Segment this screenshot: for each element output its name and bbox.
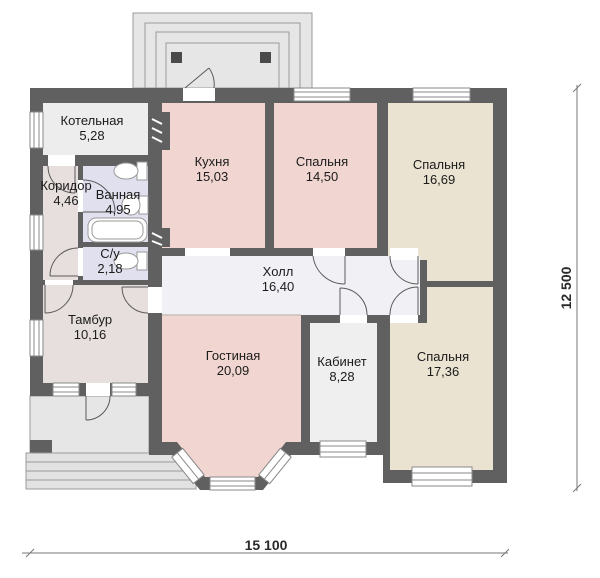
room-label-wc: С/у2,18 bbox=[97, 246, 122, 276]
window bbox=[412, 467, 472, 486]
window bbox=[294, 88, 350, 101]
window bbox=[30, 112, 43, 148]
floor-plan: Котельная5,28 Коридор4,46 Ванная4,95 С/у… bbox=[0, 0, 600, 578]
window bbox=[413, 88, 470, 101]
window bbox=[112, 383, 136, 396]
room-label-kitchen: Кухня15,03 bbox=[195, 154, 230, 184]
room-label-office: Кабинет8,28 bbox=[317, 354, 366, 384]
room-label-bedroom1: Спальня14,50 bbox=[296, 154, 348, 184]
room-label-bedroom3: Спальня17,36 bbox=[417, 349, 469, 379]
porch-post bbox=[171, 52, 182, 63]
floor-plan-drawing bbox=[0, 0, 600, 578]
porch-post bbox=[260, 52, 271, 63]
room-label-bathroom: Ванная4,95 bbox=[96, 187, 141, 217]
room-label-boiler: Котельная5,28 bbox=[61, 113, 124, 143]
porch-pillar bbox=[30, 440, 52, 453]
window bbox=[30, 215, 43, 250]
window bbox=[210, 477, 255, 490]
room-label-living: Гостиная20,09 bbox=[206, 348, 261, 378]
room-label-vestibule: Тамбур10,16 bbox=[68, 312, 112, 342]
room-label-corridor: Коридор4,46 bbox=[40, 178, 91, 208]
window bbox=[53, 383, 79, 396]
dimension-height-label: 12 500 bbox=[558, 267, 574, 310]
entrance-porch-top bbox=[133, 13, 312, 88]
room-label-hall: Холл16,40 bbox=[262, 264, 295, 294]
room-label-bedroom2: Спальня16,69 bbox=[413, 157, 465, 187]
window bbox=[30, 320, 43, 356]
porch-steps bbox=[26, 453, 196, 489]
dimension-width-label: 15 100 bbox=[245, 537, 288, 553]
kitchen-hall-opening bbox=[185, 248, 230, 256]
window bbox=[320, 441, 366, 457]
